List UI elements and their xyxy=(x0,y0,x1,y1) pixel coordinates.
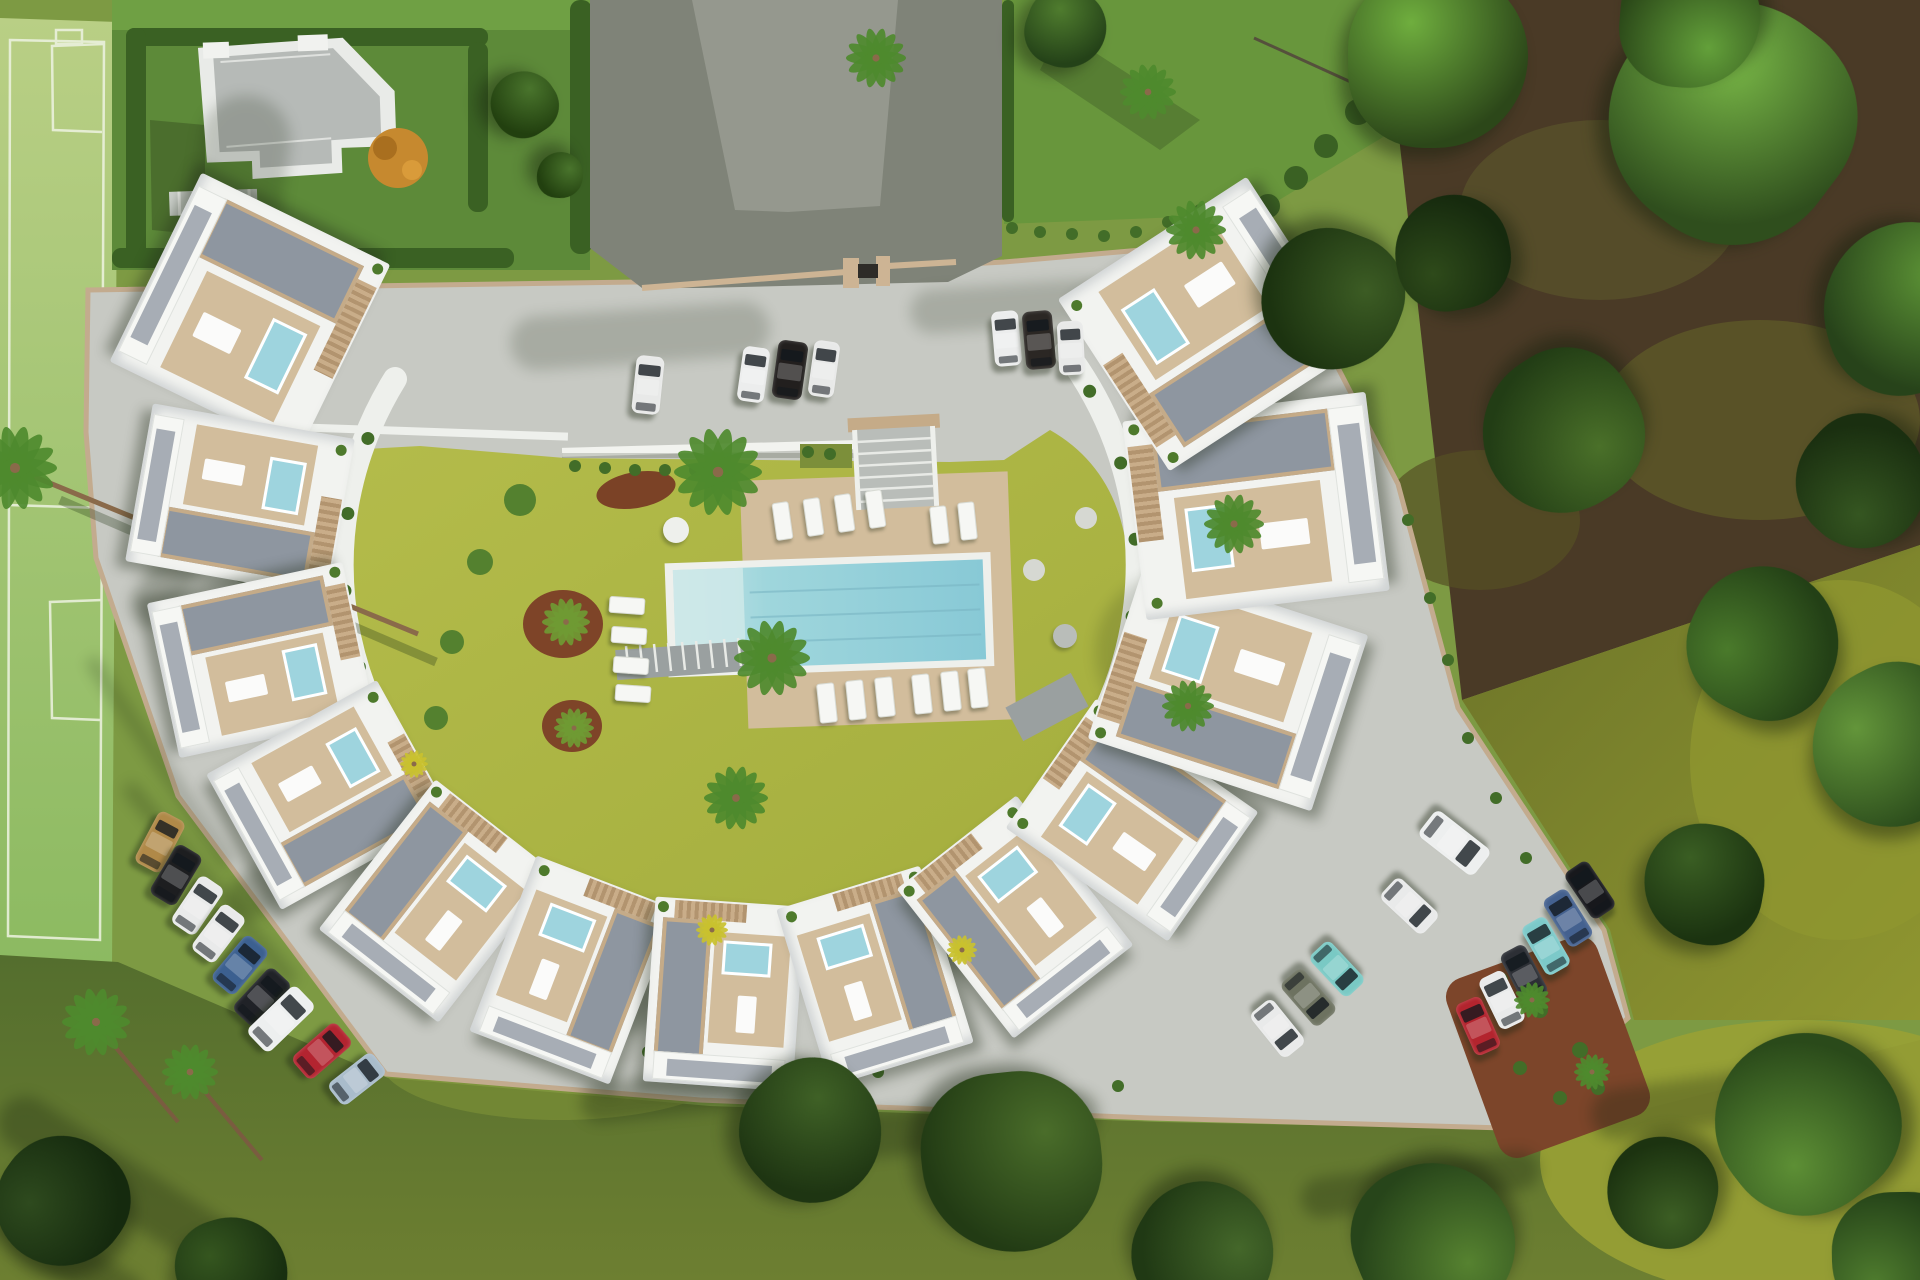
palm-tree xyxy=(674,427,762,517)
palm-tree xyxy=(542,597,590,646)
palm-tree xyxy=(400,750,428,779)
palm-layer xyxy=(0,0,1920,1280)
palm-tree xyxy=(0,425,57,511)
palm-tree xyxy=(734,619,810,697)
palm-tree xyxy=(554,707,594,748)
palm-tree xyxy=(1514,981,1550,1018)
palm-tree xyxy=(1166,199,1226,261)
palm-tree xyxy=(947,935,977,966)
palm-tree xyxy=(162,1043,218,1101)
palm-tree xyxy=(62,987,130,1057)
palm-tree xyxy=(1574,1053,1610,1090)
site-plan-render xyxy=(0,0,1920,1280)
palm-tree xyxy=(1162,679,1214,732)
palm-tree xyxy=(696,914,728,947)
palm-tree xyxy=(704,765,768,831)
palm-tree xyxy=(846,27,906,89)
palm-tree xyxy=(1204,493,1264,555)
palm-tree xyxy=(1120,63,1176,121)
